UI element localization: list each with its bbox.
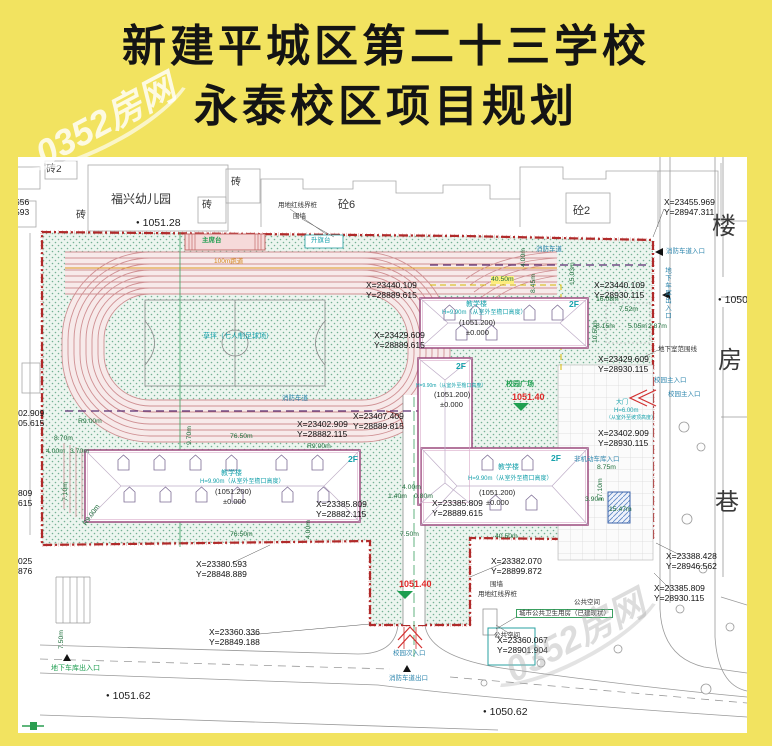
- red-line-marker-label: 用地红线界桩: [478, 591, 517, 598]
- dimension-label: 4.00m: [520, 248, 528, 267]
- building-name: 教学楼: [221, 470, 242, 478]
- coordinate-callout-partial: 556593: [18, 198, 29, 218]
- soccer-field: [145, 300, 325, 386]
- coordinate-callout: X=23455.969Y=28947.311: [664, 198, 715, 218]
- building-zero: ±0.000: [223, 498, 246, 507]
- coordinate-callout-partial: 809615: [18, 489, 32, 509]
- spot-elevation: 1051.28: [136, 217, 181, 229]
- building-height: H=9.90m（从室外至檐口高度）: [200, 479, 285, 486]
- coordinate-callout: X=23360.336Y=28849.188: [209, 628, 260, 648]
- gate-label: 大门: [616, 400, 628, 407]
- building-level: (1051.200): [479, 489, 515, 498]
- coordinate-callout-partial: 025876: [18, 557, 32, 577]
- coordinate-callout: X=23429.609Y=28889.615: [374, 331, 425, 351]
- dimension-label: 4.00m: [46, 448, 65, 456]
- coordinate-callout: X=23382.070Y=28899.872: [491, 557, 542, 577]
- dimension-label: 0.80m: [414, 493, 433, 501]
- building-height: H=9.90m（从室外至檐口高度）: [442, 310, 527, 317]
- street-name-char: 房: [718, 347, 742, 375]
- track-label: 100m跑道: [214, 258, 243, 265]
- gate-note-label: （从室外至坡顶高度）: [606, 416, 656, 422]
- field-label: 草坪（七人制足球场）: [203, 333, 273, 341]
- bike-garage-entry-label: 非机动车库入口: [574, 456, 620, 463]
- spot-elevation: 1051.62: [106, 690, 151, 702]
- dimension-label: 1.40m: [388, 493, 407, 501]
- context-label-concrete2: 砼2: [573, 205, 590, 218]
- dimension-label: 9.70m: [186, 426, 194, 445]
- wall-label: 围墙: [490, 581, 503, 588]
- basement-line-label: 地下室范围线: [658, 346, 697, 353]
- building-level: (1051.200): [215, 488, 251, 497]
- south-elevation: 1051.40: [399, 579, 432, 589]
- garage-entrance-label-right: 地下车库出入口: [663, 267, 670, 329]
- coordinate-callout: X=23429.609Y=28930.115: [598, 355, 649, 375]
- context-label-brick: 砖: [231, 177, 241, 189]
- main-entrance-label: 校园主入口: [668, 391, 701, 398]
- dimension-label: 4.00m: [402, 484, 421, 492]
- dimension-label: 8.15m: [596, 323, 615, 331]
- flag-stage-label: 升旗台: [311, 237, 331, 244]
- dimension-label: R9.00m: [78, 418, 102, 426]
- side-entrance-label: 校园次入口: [393, 650, 426, 657]
- plaza-label: 校园广场: [506, 381, 534, 389]
- fire-lane-entrance-label: 消防车道入口: [666, 248, 705, 255]
- coordinate-callout-partial: 23402.90928805.615: [18, 409, 44, 429]
- dimension-label: 76.50m: [230, 531, 253, 539]
- street-name-char: 巷: [715, 489, 739, 517]
- building-height: H=9.90m（从室外至檐口高度）: [416, 384, 486, 390]
- coordinate-callout: X=23380.593Y=28848.889: [196, 560, 247, 580]
- dimension-label: 16.08m: [596, 296, 619, 304]
- spot-elevation: 1050.: [718, 294, 747, 306]
- building-name: 教学楼: [466, 301, 487, 309]
- street-name-char: 楼: [712, 213, 736, 241]
- kindergarten-label: 福兴幼儿园: [111, 193, 171, 207]
- utility-symbol: [22, 722, 44, 730]
- context-label-brick: 砖: [202, 200, 212, 212]
- garage-ramp: [56, 577, 90, 623]
- wall-label: 围墙: [293, 213, 306, 220]
- building-floors: 2F: [569, 300, 579, 310]
- dimension-label: 8.70m: [54, 435, 73, 443]
- fire-lane-exit-label: 消防车道出口: [389, 675, 428, 682]
- coordinate-callout: X=23385.809Y=28882.115: [316, 500, 367, 520]
- gate-height-label: H=6.00m: [614, 408, 639, 415]
- grandstand: [185, 234, 265, 250]
- dimension-label: 3.70m: [70, 448, 89, 456]
- site-plan-page: 新建平城区第二十三学校 永泰校区项目规划 0352房网: [0, 0, 772, 746]
- coordinate-callout: X=23440.109Y=28889.615: [366, 281, 417, 301]
- building-floors: 2F: [456, 362, 466, 372]
- coordinate-callout: X=23402.909Y=28930.115: [598, 429, 649, 449]
- building-height: H=9.90m（从室外至檐口高度）: [468, 476, 553, 483]
- dimension-label: 4.00m: [305, 520, 313, 539]
- dimension-label: R9.00m: [307, 443, 331, 451]
- context-label-brick: 砖: [76, 210, 86, 222]
- dimension-label: 40.50m: [491, 276, 514, 284]
- grandstand-label: 主席台: [202, 237, 222, 244]
- plaza-elevation: 1051.40: [512, 392, 545, 402]
- building-level: (1051.200): [459, 319, 495, 328]
- red-line-marker-label: 用地红线界桩: [278, 202, 317, 209]
- main-entrance-label: 校园主入口: [654, 377, 687, 384]
- dimension-label: 7.50m: [58, 630, 66, 649]
- dimension-label: 2.87m: [648, 323, 667, 331]
- building-floors: 2F: [348, 455, 358, 465]
- garage-entrance-label-left: 地下车库出入口: [51, 665, 100, 673]
- dimension-label: 7.52m: [619, 306, 638, 314]
- fire-lane-label: 消防车道: [282, 395, 308, 402]
- coordinate-callout: X=23407.409Y=28889.815: [353, 412, 404, 432]
- building-zero: ±0.000: [466, 329, 489, 338]
- building-name: 教学楼: [498, 464, 519, 472]
- coordinate-callout: X=23385.809Y=28889.615: [432, 499, 483, 519]
- dimension-label: 76.50m: [230, 433, 253, 441]
- site-plan-drawing: 砖2 砖 砖 砖 福兴幼儿园 砼6 砼2 楼 房 巷 1051.28 1050.…: [18, 157, 747, 733]
- building-zero: ±0.000: [486, 499, 509, 508]
- dimension-label: 5.05m: [628, 323, 647, 331]
- dimension-label: 15.03m: [569, 262, 577, 285]
- dimension-label: 8.75m: [597, 464, 616, 472]
- building-level: (1051.200): [434, 391, 470, 400]
- building-zero: ±0.000: [440, 401, 463, 410]
- dimension-label: 8.45m: [530, 274, 538, 293]
- dimension-label: 40.50m: [495, 533, 518, 541]
- fire-lane-label: 消防车道: [536, 246, 562, 253]
- dimension-label: 3.90m: [585, 496, 604, 504]
- dimension-label: 7.50m: [400, 531, 419, 539]
- dimension-label: 15.47m: [609, 506, 632, 514]
- dimension-label: 7.10m: [62, 482, 70, 501]
- context-label-concrete6: 砼6: [338, 199, 355, 212]
- coordinate-callout: X=23402.909Y=28882.115: [297, 420, 348, 440]
- page-title-line-1: 新建平城区第二十三学校: [0, 10, 772, 74]
- building-floors: 2F: [551, 454, 561, 464]
- coordinate-callout: X=23388.428Y=28946.562: [666, 552, 717, 572]
- spot-elevation: 1050.62: [483, 706, 528, 718]
